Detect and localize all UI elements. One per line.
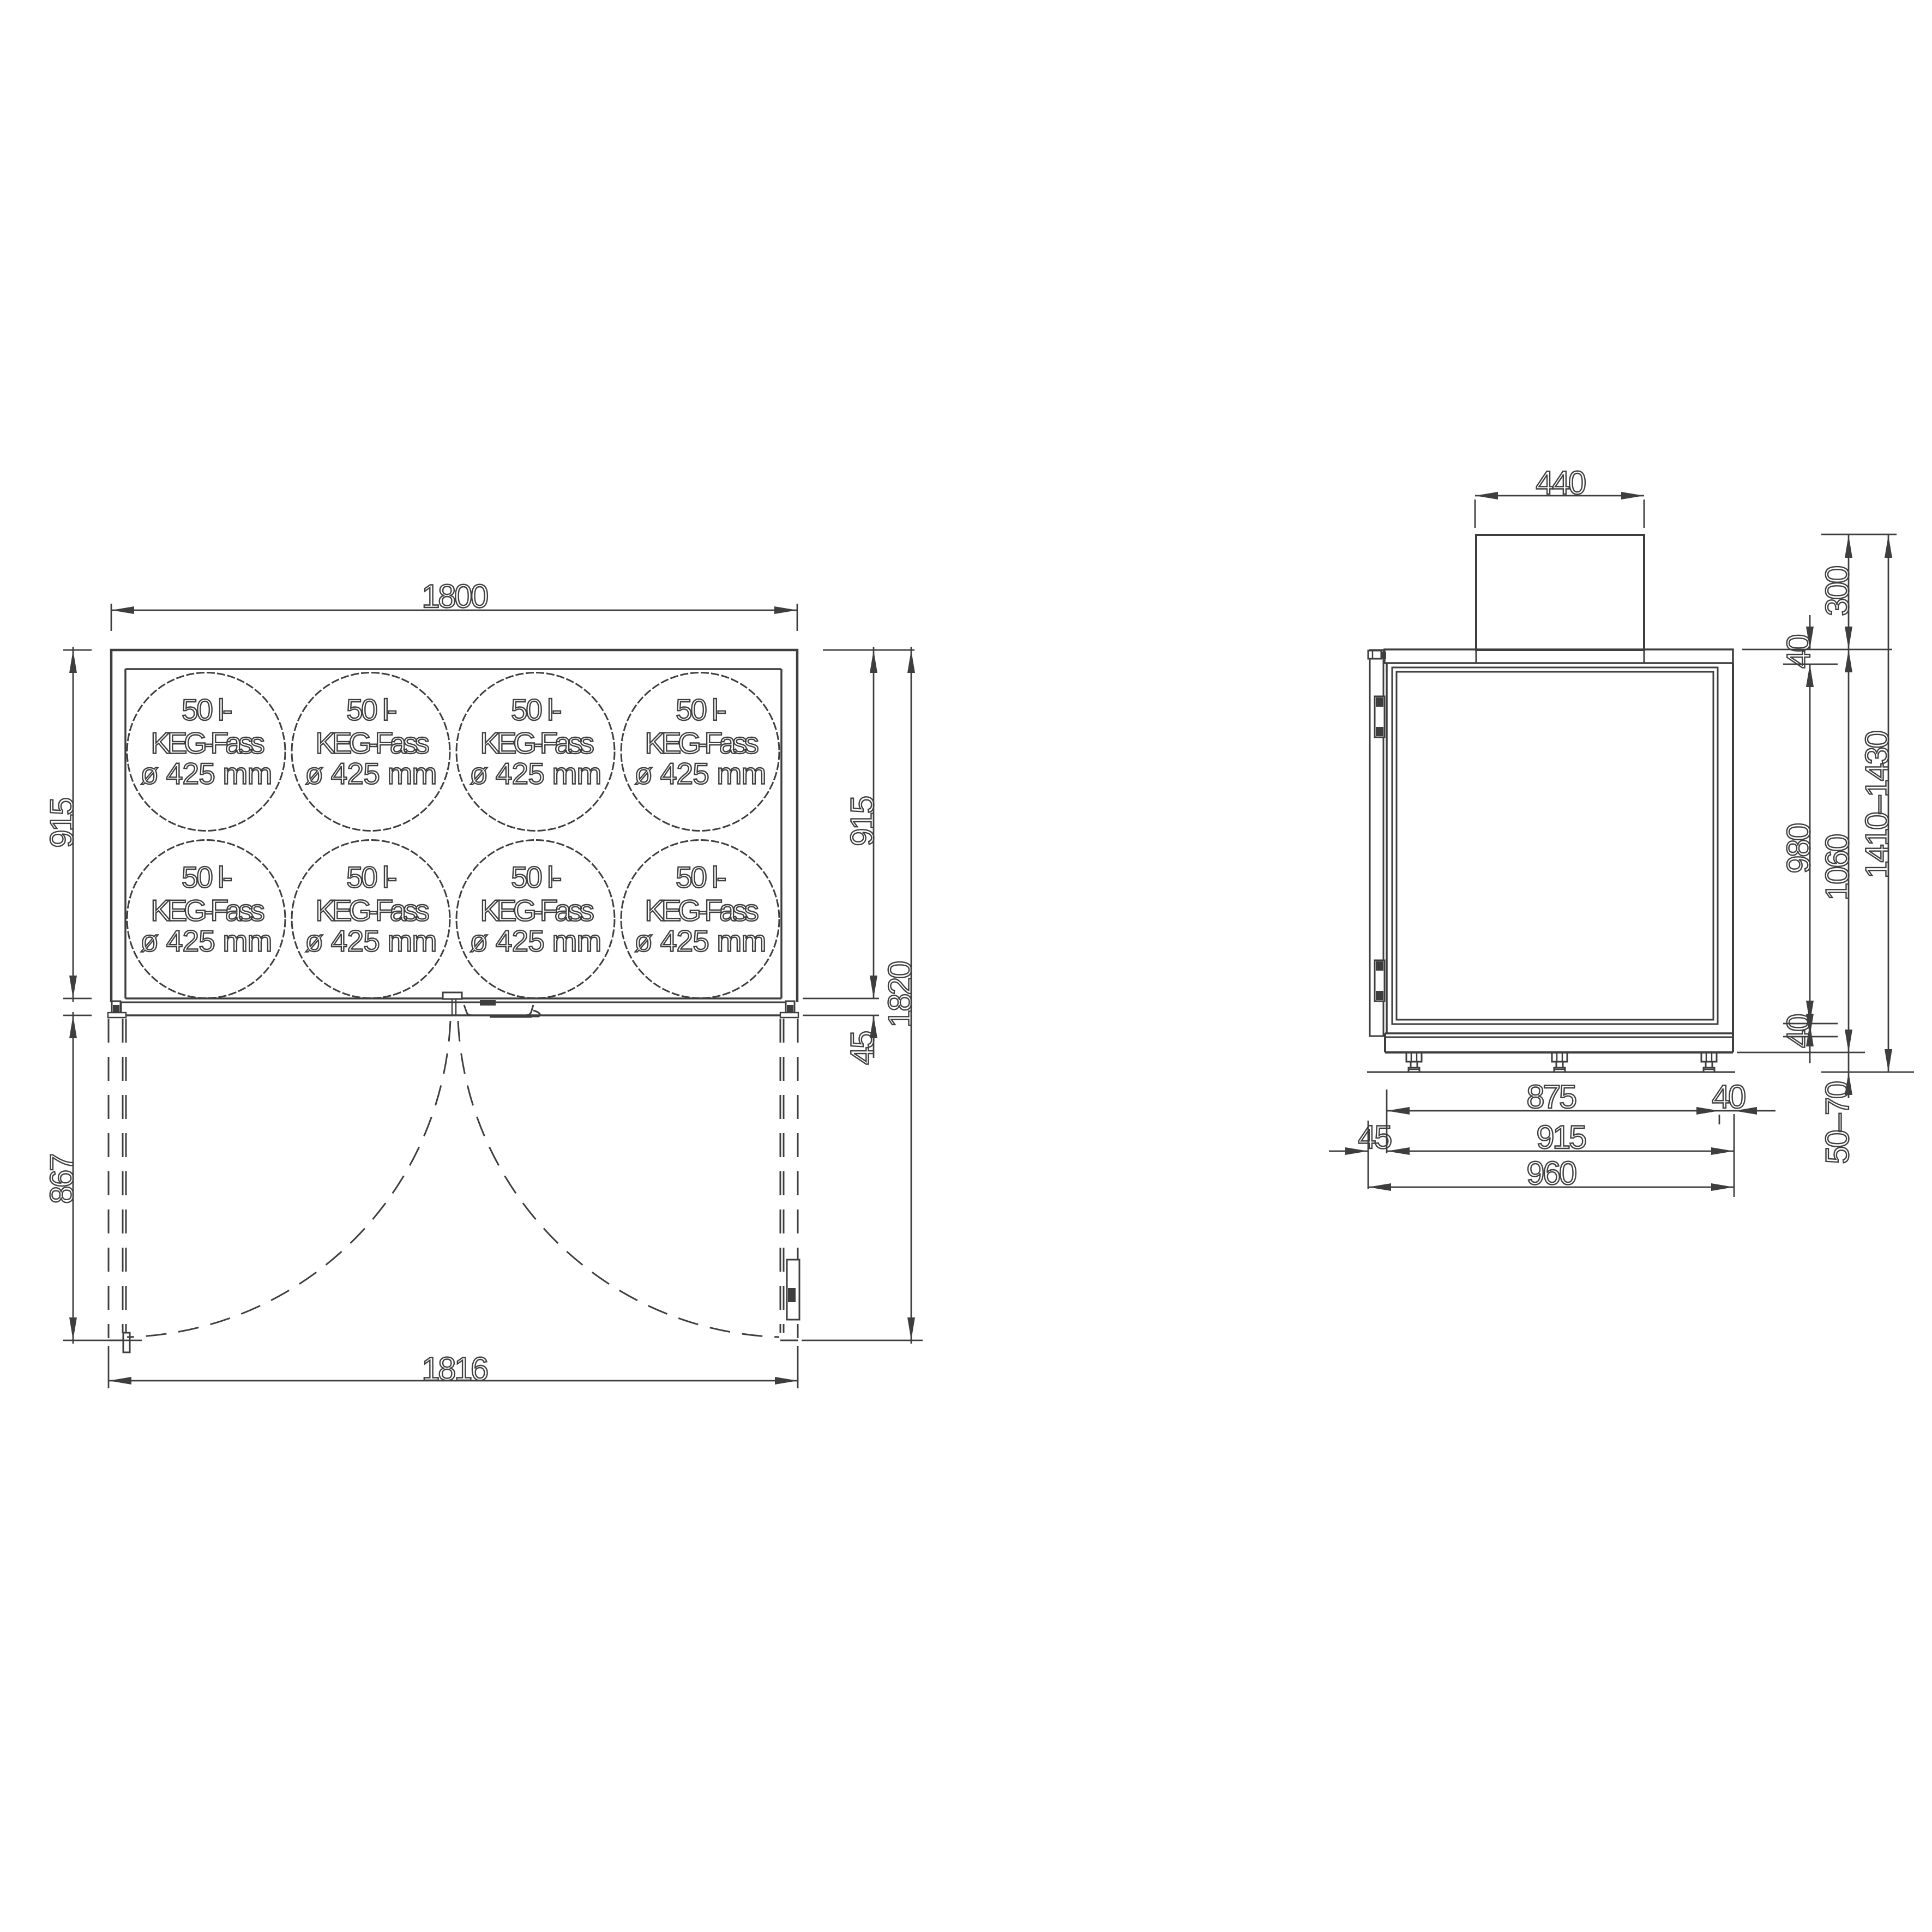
- svg-text:KEG-Fass: KEG-Fass: [151, 894, 264, 928]
- svg-text:KEG-Fass: KEG-Fass: [645, 894, 758, 928]
- svg-text:KEG-Fass: KEG-Fass: [480, 726, 593, 760]
- svg-text:KEG-Fass: KEG-Fass: [480, 894, 593, 928]
- svg-text:40: 40: [1780, 635, 1817, 669]
- svg-text:875: 875: [1526, 1079, 1576, 1115]
- svg-text:ø 425 mm: ø 425 mm: [634, 924, 766, 958]
- svg-text:50 l-: 50 l-: [676, 860, 725, 894]
- svg-text:300: 300: [1819, 566, 1856, 616]
- svg-text:45: 45: [1358, 1119, 1391, 1155]
- svg-text:ø 425 mm: ø 425 mm: [140, 924, 272, 958]
- svg-text:50 l-: 50 l-: [676, 693, 725, 727]
- svg-text:ø 425 mm: ø 425 mm: [470, 757, 601, 791]
- svg-text:980: 980: [1780, 823, 1817, 874]
- svg-text:1060: 1060: [1819, 834, 1856, 901]
- svg-text:KEG-Fass: KEG-Fass: [315, 894, 429, 928]
- svg-text:1816: 1816: [422, 1351, 487, 1387]
- svg-text:KEG-Fass: KEG-Fass: [151, 726, 264, 760]
- svg-text:40: 40: [1780, 1014, 1817, 1048]
- svg-text:40: 40: [1712, 1079, 1746, 1115]
- svg-text:45: 45: [844, 1032, 881, 1065]
- svg-text:1820: 1820: [882, 961, 918, 1028]
- svg-text:1800: 1800: [422, 578, 488, 615]
- svg-text:915: 915: [44, 798, 80, 848]
- svg-text:440: 440: [1536, 465, 1586, 501]
- svg-text:ø 425 mm: ø 425 mm: [470, 924, 601, 958]
- svg-text:867: 867: [44, 1154, 80, 1204]
- svg-text:50 l-: 50 l-: [346, 693, 396, 727]
- svg-text:ø 425 mm: ø 425 mm: [140, 757, 272, 791]
- svg-text:915: 915: [1536, 1119, 1586, 1155]
- svg-text:50 l-: 50 l-: [182, 693, 231, 727]
- svg-text:50 l-: 50 l-: [511, 693, 561, 727]
- svg-text:KEG-Fass: KEG-Fass: [645, 726, 758, 760]
- svg-text:915: 915: [844, 797, 881, 846]
- svg-text:ø 425 mm: ø 425 mm: [305, 924, 436, 958]
- svg-text:KEG-Fass: KEG-Fass: [315, 726, 429, 760]
- svg-text:1410–1430: 1410–1430: [1859, 731, 1895, 878]
- svg-text:960: 960: [1526, 1155, 1576, 1191]
- svg-text:50 l-: 50 l-: [511, 860, 561, 894]
- svg-text:50 l-: 50 l-: [346, 860, 396, 894]
- svg-text:50–70: 50–70: [1819, 1081, 1856, 1164]
- svg-text:50 l-: 50 l-: [182, 860, 231, 894]
- svg-text:ø 425 mm: ø 425 mm: [634, 757, 766, 791]
- svg-text:ø 425 mm: ø 425 mm: [305, 757, 436, 791]
